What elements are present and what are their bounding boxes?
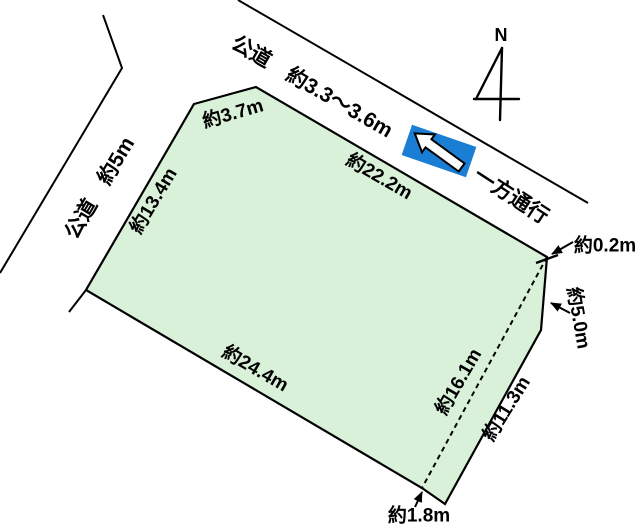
land-plot-diagram: 公道 約3.3～3.6m 公道 約5m N 一方通行 約3.7m 約22.2m … (0, 0, 640, 529)
dim-corner-south: 約1.8m (388, 507, 450, 526)
pointer-arrow-0-2m (552, 242, 573, 254)
road-left-inner-extension (69, 290, 86, 312)
north-arrow-icon (474, 48, 519, 120)
road-left-outer-line (0, 15, 122, 273)
north-label: N (495, 26, 508, 44)
dim-corner-northeast: 約0.2m (574, 237, 636, 256)
one-way-sign-icon (401, 122, 478, 180)
land-parcel-shape (86, 87, 547, 504)
